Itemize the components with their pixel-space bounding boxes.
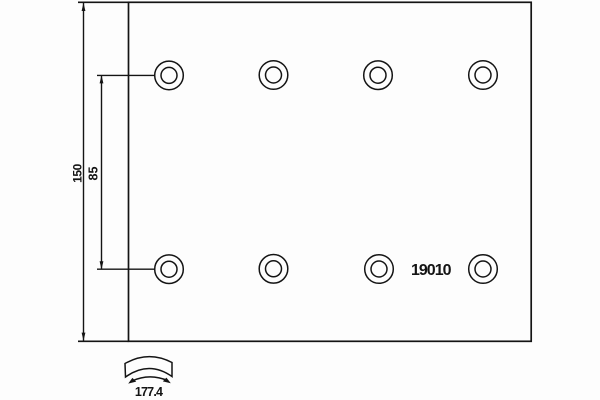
svg-text:85: 85: [87, 167, 101, 181]
svg-text:150: 150: [71, 163, 85, 183]
svg-text:177.4: 177.4: [135, 385, 163, 399]
svg-text:19010: 19010: [411, 262, 452, 279]
